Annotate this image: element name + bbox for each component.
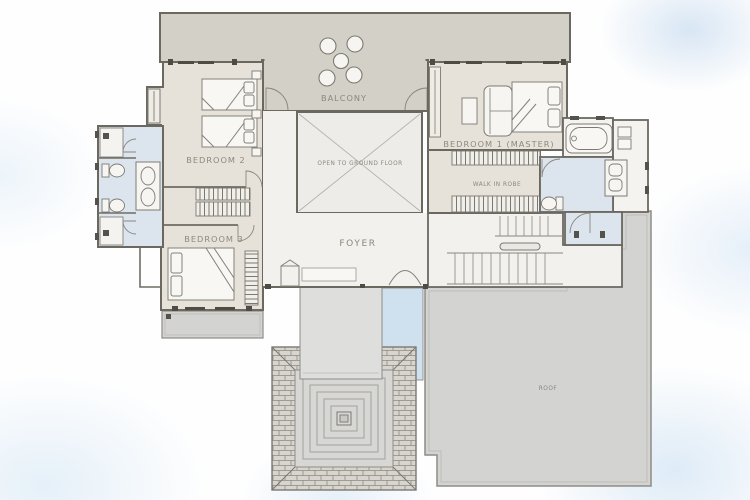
terrace-band	[160, 13, 570, 62]
gallery-walkway	[263, 111, 297, 213]
pillow	[548, 109, 560, 127]
bedroom3-wardrobe	[245, 251, 258, 305]
ensuite-vanity	[605, 160, 627, 196]
foyer-window-seat	[302, 268, 356, 281]
pillow	[244, 82, 254, 93]
toilet	[102, 199, 125, 212]
bedroom2-label: BEDROOM 2	[186, 155, 246, 165]
window-mark	[166, 314, 171, 319]
roof-strip-below-bedroom3	[162, 311, 263, 338]
bedroom2-bed-2	[202, 116, 257, 147]
pillow	[548, 87, 560, 105]
balcony-table	[334, 54, 349, 69]
pillow	[171, 276, 182, 296]
pyramid-apex	[340, 415, 348, 422]
balcony-chair	[320, 38, 336, 54]
open-to-ground-floor-label: OPEN TO GROUND FLOOR	[317, 161, 402, 167]
exterior-step-wall	[140, 247, 161, 287]
foyer-label: FOYER	[339, 239, 376, 249]
central-void: OPEN TO GROUND FLOOR	[263, 111, 422, 213]
balcony-chair	[346, 67, 362, 83]
robe-rack	[452, 196, 540, 212]
ensuite-toilet	[542, 197, 564, 210]
floor-plan-canvas: ROOF	[0, 0, 750, 500]
bathtub	[566, 124, 612, 153]
pillow	[244, 95, 254, 106]
hall-robe-shelf	[196, 188, 250, 200]
bedroom3-bed	[168, 248, 234, 300]
balcony-chair	[319, 70, 335, 86]
floor-plan-drawing: ROOF	[0, 0, 750, 500]
entry-feature	[272, 287, 423, 490]
double-vanity	[136, 162, 160, 210]
hall-robe-shelf	[196, 202, 250, 216]
pillow	[244, 132, 254, 143]
balcony-chair	[347, 36, 363, 52]
toilet	[102, 164, 125, 177]
vestibule	[565, 212, 622, 245]
pillow	[171, 253, 182, 273]
shower-cubicle	[100, 128, 123, 157]
left-bathroom-block	[95, 126, 163, 247]
drain-mark	[103, 230, 109, 236]
robe-rack	[452, 151, 540, 165]
master-bed	[512, 82, 562, 132]
roof-label: ROOF	[539, 386, 558, 392]
walk-in-robe-label: WALK IN ROBE	[473, 182, 521, 188]
balcony-label: BALCONY	[321, 93, 367, 103]
ottoman	[462, 98, 477, 124]
pillow	[244, 119, 254, 130]
bedroom2-bed-1	[202, 79, 257, 110]
entry-porch	[300, 287, 382, 379]
stair-handrail	[500, 243, 540, 250]
bedroom1-label: BEDROOM 1 (MASTER)	[443, 139, 554, 149]
drain-mark	[103, 133, 109, 139]
master-sofa	[484, 86, 512, 136]
roof-strip	[162, 311, 263, 338]
bedroom3-label: BEDROOM 3	[184, 234, 244, 244]
